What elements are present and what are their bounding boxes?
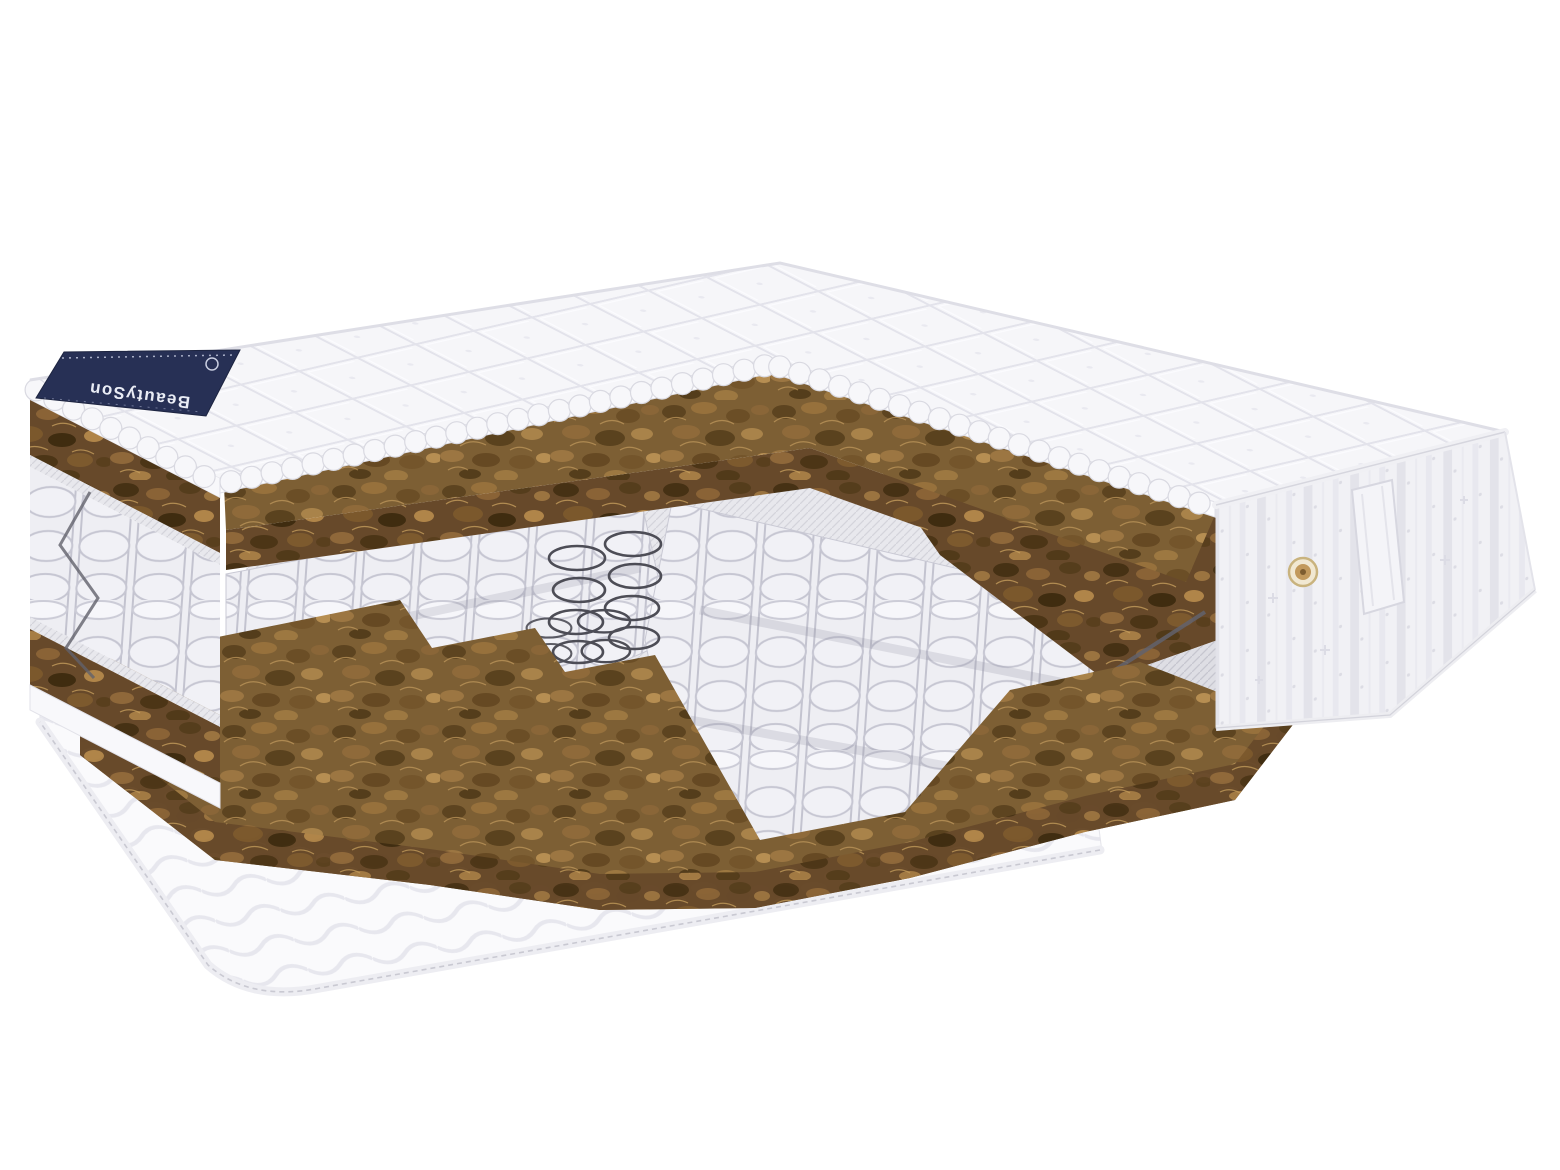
- quilt-scallop-puff: [829, 375, 851, 397]
- quilt-scallop-puff: [548, 399, 570, 421]
- quilt-scallop-puff: [466, 417, 488, 439]
- quilt-scallop-puff: [261, 462, 283, 484]
- quilt-scallop-puff: [713, 364, 735, 386]
- quilt-scallop-puff: [241, 466, 263, 488]
- quilt-scallop-puff: [487, 413, 509, 435]
- quilt-scallop-puff: [446, 422, 468, 444]
- quilt-scallop-puff: [651, 377, 673, 399]
- quilt-scallop-puff: [569, 395, 591, 417]
- quilt-scallop-puff: [733, 359, 755, 381]
- quilt-scallop-puff: [1068, 453, 1090, 475]
- quilt-scallop-puff: [343, 444, 365, 466]
- quilt-scallop-puff: [220, 471, 242, 493]
- quilt-scallop-puff: [589, 390, 611, 412]
- quilt-scallop-puff: [364, 440, 386, 462]
- quilt-scallop-puff: [507, 408, 529, 430]
- quilt-scallop-puff: [968, 421, 990, 443]
- quilt-scallop-puff: [528, 404, 550, 426]
- quilt-scallop-puff: [1048, 447, 1070, 469]
- quilt-scallop-puff: [323, 448, 345, 470]
- quilt-scallop-puff: [193, 466, 215, 488]
- quilt-scallop-puff: [302, 453, 324, 475]
- quilt-scallop-puff: [889, 395, 911, 417]
- quilt-scallop-puff: [692, 368, 714, 390]
- quilt-scallop-puff: [869, 388, 891, 410]
- quilt-scallop-puff: [948, 414, 970, 436]
- quilt-scallop-puff: [1008, 434, 1030, 456]
- quilt-scallop-puff: [425, 426, 447, 448]
- quilt-scallop-puff: [1108, 466, 1130, 488]
- product-photo-stage: BeautySon: [0, 0, 1560, 1170]
- quilt-scallop-puff: [809, 369, 831, 391]
- quilt-scallop-puff: [672, 373, 694, 395]
- quilt-scallop-puff: [1148, 479, 1170, 501]
- quilt-scallop-puff: [1188, 492, 1210, 514]
- quilt-scallop-puff: [384, 435, 406, 457]
- quilt-scallop-puff: [1028, 440, 1050, 462]
- quilt-scallop-puff: [909, 401, 931, 423]
- quilt-scallop-puff: [1128, 473, 1150, 495]
- quilt-scallop-puff: [988, 427, 1010, 449]
- air-vent-icon: [1289, 558, 1317, 586]
- quilt-scallop-puff: [631, 382, 653, 404]
- quilt-scallop-puff: [282, 457, 304, 479]
- quilt-scallop-puff: [405, 431, 427, 453]
- quilt-scallop-puff: [769, 356, 791, 378]
- mattress-cutaway-photo: BeautySon: [0, 0, 1560, 1170]
- quilt-scallop-puff: [610, 386, 632, 408]
- quilt-scallop-puff: [849, 382, 871, 404]
- quilt-scallop-puff: [1168, 486, 1190, 508]
- quilt-scallop-puff: [1088, 460, 1110, 482]
- quilt-scallop-puff: [928, 408, 950, 430]
- quilt-scallop-puff: [789, 362, 811, 384]
